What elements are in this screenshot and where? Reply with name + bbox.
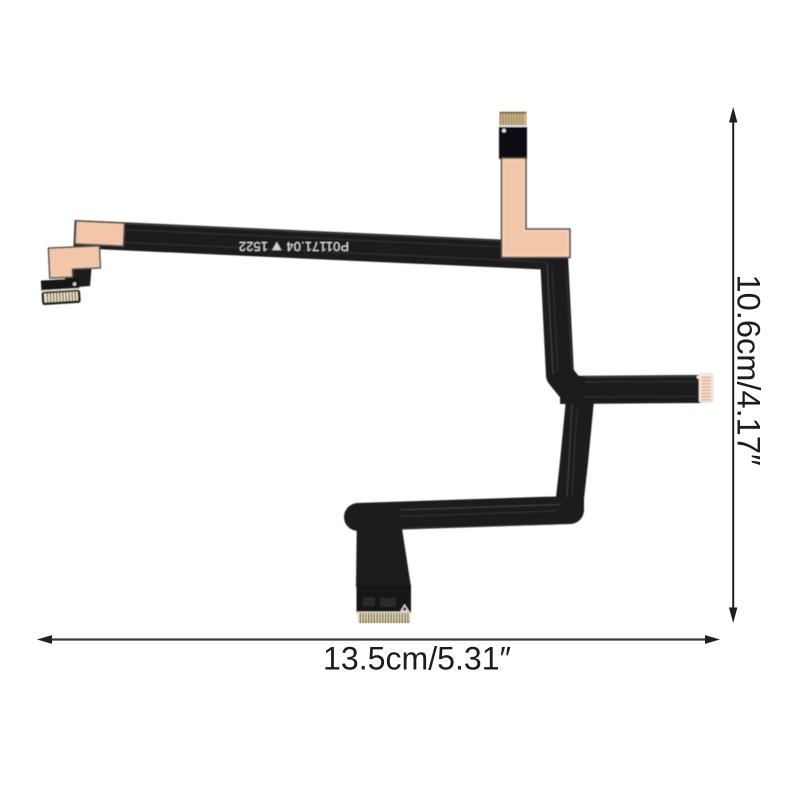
svg-text:13.5cm/5.31″: 13.5cm/5.31″ bbox=[323, 641, 511, 677]
svg-text:1522: 1522 bbox=[239, 239, 268, 254]
svg-text:10.6cm/4.17″: 10.6cm/4.17″ bbox=[731, 275, 767, 466]
svg-text:P01171.04: P01171.04 bbox=[286, 239, 349, 254]
